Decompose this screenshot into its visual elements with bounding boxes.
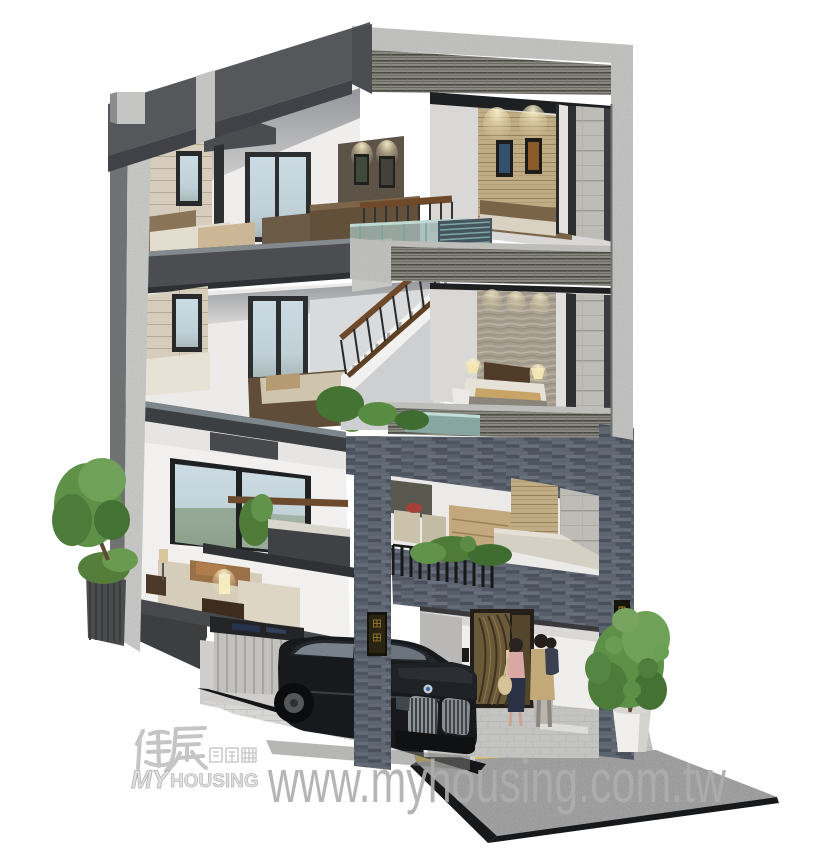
svg-text:HOUSING: HOUSING: [170, 771, 259, 792]
svg-text:www.myhousing.com.tw: www.myhousing.com.tw: [267, 748, 726, 815]
svg-text:MY: MY: [131, 766, 171, 794]
